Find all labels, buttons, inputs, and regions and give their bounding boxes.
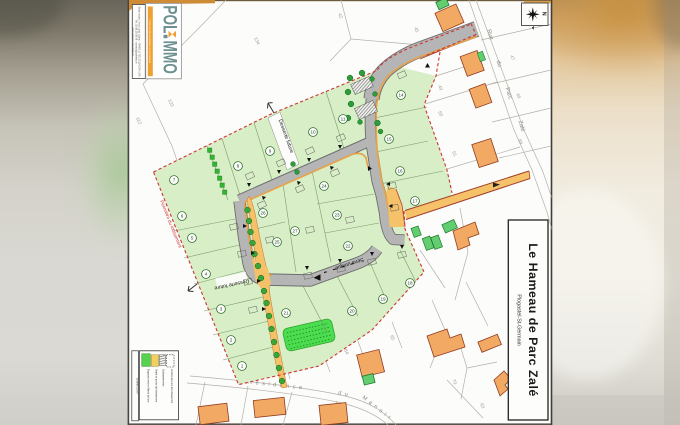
svg-text:26: 26 (260, 211, 266, 216)
svg-text:20: 20 (349, 309, 355, 314)
svg-text:22: 22 (345, 244, 351, 249)
svg-text:19: 19 (380, 297, 386, 302)
svg-text:N: N (541, 12, 547, 16)
svg-text:24: 24 (321, 184, 327, 189)
svg-text:CONSTRUIRE ENSEMBLE VOTRE AVEN: CONSTRUIRE ENSEMBLE VOTRE AVENIR (148, 19, 151, 63)
svg-text:Espaces verts et libres de lot: Espaces verts et libres de lots (147, 369, 150, 403)
svg-text:11: 11 (341, 117, 346, 122)
svg-text:25: 25 (274, 240, 280, 245)
svg-text:27: 27 (292, 229, 298, 234)
svg-text:POL: POL (159, 5, 181, 33)
svg-text:Plogastel-St-Germain: Plogastel-St-Germain (516, 294, 522, 346)
svg-text:7: 7 (173, 178, 176, 183)
svg-text:Le Hameau de Parc Zalé: Le Hameau de Parc Zalé (526, 243, 540, 397)
svg-text:6: 6 (181, 214, 184, 219)
svg-text:15: 15 (386, 137, 392, 142)
svg-text:9: 9 (269, 149, 272, 154)
svg-text:18: 18 (407, 281, 413, 286)
svg-text:Limites des lots du lotissemen: Limites des lots du lotissement (170, 369, 173, 403)
svg-text:Voirie et accès du lotissement: Voirie et accès du lotissement (155, 369, 158, 402)
svg-text:Stationnements: Stationnements (162, 369, 165, 387)
svg-text:2: 2 (230, 338, 233, 343)
svg-text:8: 8 (237, 164, 240, 169)
svg-text:23: 23 (334, 213, 340, 218)
svg-text:MMO: MMO (159, 41, 181, 75)
svg-text:3: 3 (220, 307, 223, 312)
svg-text:10: 10 (310, 130, 316, 135)
svg-text:17: 17 (412, 199, 418, 204)
svg-text:16: 16 (397, 169, 403, 174)
svg-text:www.polimmo-immobilier.fr: www.polimmo-immobilier.fr (131, 27, 134, 56)
svg-text:4: 4 (205, 272, 208, 277)
svg-text:1: 1 (241, 364, 244, 369)
svg-text:5: 5 (191, 236, 194, 241)
svg-text:14: 14 (398, 93, 404, 98)
svg-text:21: 21 (283, 311, 289, 316)
